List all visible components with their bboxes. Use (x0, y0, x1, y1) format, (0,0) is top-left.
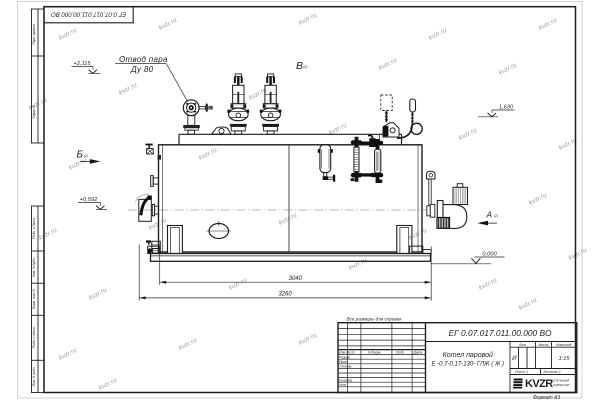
svg-text:(2): (2) (304, 65, 308, 69)
svg-text:Масштаб: Масштаб (556, 343, 572, 347)
svg-text:Лист 1: Лист 1 (514, 370, 528, 374)
svg-text:Подп. и дата: Подп. и дата (32, 327, 36, 348)
svg-text:Инв. N дубл.: Инв. N дубл. (32, 257, 36, 277)
svg-text:Лит.: Лит. (518, 343, 527, 347)
svg-text:Пров.: Пров. (339, 360, 348, 364)
svg-text:1,630: 1,630 (499, 105, 514, 111)
svg-text:KVZR: KVZR (525, 378, 553, 390)
svg-text:Котел паровой: Котел паровой (443, 351, 493, 359)
svg-text:Инв. N подл.: Инв. N подл. (32, 366, 36, 386)
svg-text:Дата: Дата (413, 350, 423, 354)
svg-text:Разраб.: Разраб. (339, 355, 351, 359)
svg-text:(2): (2) (494, 214, 498, 218)
svg-text:Подп. и дата: Подп. и дата (32, 218, 36, 239)
svg-text:В: В (296, 60, 303, 72)
svg-text:Подп.: Подп. (396, 350, 405, 354)
svg-text:Взам. инв. N: Взам. инв. N (32, 289, 36, 309)
svg-text:Перв. примен.: Перв. примен. (32, 23, 36, 44)
svg-text:И: И (512, 355, 517, 362)
svg-text:ЕГ 0.07.017.011.00.000 ВО: ЕГ 0.07.017.011.00.000 ВО (51, 11, 126, 18)
svg-text:Отвод пара: Отвод пара (119, 55, 168, 64)
svg-text:3040: 3040 (289, 276, 303, 282)
svg-text:Т.контр.: Т.контр. (339, 365, 352, 369)
svg-text:+0,592: +0,592 (80, 197, 98, 203)
svg-text:Изм.Лист: Изм.Лист (339, 350, 355, 354)
svg-text:Утв.: Утв. (339, 383, 347, 387)
svg-text:N докум.: N докум. (368, 350, 381, 354)
svg-text:ЕГ 0.07.017.011.00.000 ВО: ЕГ 0.07.017.011.00.000 ВО (449, 328, 552, 338)
svg-text:Е -0,7-0,17-130- ГЛЖ ( Ж ): Е -0,7-0,17-130- ГЛЖ ( Ж ) (432, 362, 505, 368)
svg-text:0,000: 0,000 (482, 252, 497, 258)
svg-text:Ду 80: Ду 80 (130, 65, 154, 74)
svg-text:Масса: Масса (539, 343, 549, 347)
svg-text:Все размеры для справок: Все размеры для справок (346, 316, 402, 321)
svg-text:+2,115: +2,115 (73, 61, 91, 67)
svg-text:А: А (486, 209, 493, 219)
svg-text:3260: 3260 (278, 292, 292, 298)
svg-text:Н.контр.: Н.контр. (339, 378, 353, 382)
svg-text:Листов 2: Листов 2 (543, 370, 562, 374)
svg-text:ЗАВОД РЭР: ЗАВОД РЭР (553, 383, 569, 387)
svg-text:1:15: 1:15 (559, 356, 571, 362)
svg-text:Формат А3: Формат А3 (533, 395, 561, 400)
